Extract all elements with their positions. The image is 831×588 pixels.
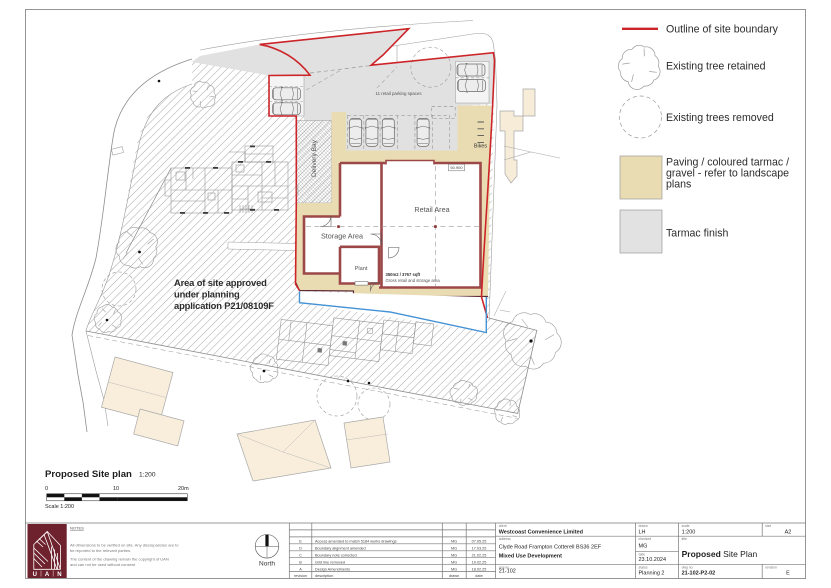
- svg-text:Outline of site boundary: Outline of site boundary: [666, 24, 779, 36]
- svg-text:A: A: [45, 572, 50, 578]
- svg-text:E: E: [299, 540, 302, 544]
- svg-text:Tarmac finish: Tarmac finish: [666, 228, 729, 240]
- svg-text:07.05.25: 07.05.25: [472, 540, 487, 544]
- svg-text:under planning: under planning: [174, 289, 240, 300]
- svg-text:Gross retail and storage area: Gross retail and storage area: [386, 278, 441, 283]
- svg-text:description: description: [315, 574, 333, 578]
- svg-text:10: 10: [113, 486, 119, 492]
- svg-text:20m: 20m: [178, 486, 189, 492]
- svg-text:E: E: [786, 571, 790, 577]
- svg-text:All dimensions to be verified: All dimensions to be verified on site. A…: [70, 543, 179, 548]
- svg-text:Design Amendments: Design Amendments: [315, 567, 350, 571]
- svg-text:U: U: [33, 572, 37, 578]
- svg-text:C: C: [299, 553, 302, 557]
- svg-text:Proposed Site plan: Proposed Site plan: [45, 469, 132, 480]
- svg-text:21.02.25: 21.02.25: [472, 553, 487, 557]
- svg-text:application P21/08109F: application P21/08109F: [174, 300, 274, 311]
- svg-text:MG: MG: [451, 540, 457, 544]
- svg-text:status: status: [639, 565, 648, 569]
- svg-text:revision: revision: [294, 574, 307, 578]
- svg-text:N: N: [57, 572, 61, 578]
- svg-text:drawn: drawn: [449, 574, 459, 578]
- svg-text:Boundary alignment amended: Boundary alignment amended: [315, 547, 366, 551]
- svg-text:MG: MG: [451, 547, 457, 551]
- svg-text:plans: plans: [666, 179, 691, 191]
- svg-text:kerbline: kerbline: [296, 184, 300, 195]
- svg-text:Access amended to match 5184 w: Access amended to match 5184 works drawi…: [315, 540, 397, 544]
- svg-text:size: size: [765, 524, 771, 528]
- svg-text:D: D: [299, 547, 302, 551]
- svg-text:dwg no.: dwg no.: [682, 565, 694, 569]
- svg-text:client: client: [499, 524, 507, 528]
- svg-text:B: B: [299, 560, 302, 564]
- svg-text:Existing tree retained: Existing tree retained: [666, 61, 766, 73]
- svg-text:address: address: [499, 537, 511, 541]
- svg-text:11 retail parking spaces: 11 retail parking spaces: [375, 91, 422, 96]
- svg-text:Retail Area: Retail Area: [414, 205, 449, 214]
- svg-text:Plant: Plant: [355, 266, 368, 272]
- svg-text:NOTES: NOTES: [70, 526, 84, 531]
- svg-text:Proposed Site Plan: Proposed Site Plan: [682, 549, 758, 559]
- svg-text:19.02.25: 19.02.25: [472, 560, 487, 564]
- svg-text:LH: LH: [639, 530, 646, 536]
- svg-text:Clyde Road Frampton Cotterell: Clyde Road Frampton Cotterell BS36 2EF: [499, 545, 602, 551]
- svg-text:scale: scale: [682, 524, 690, 528]
- svg-text:17.03.25: 17.03.25: [472, 547, 487, 551]
- svg-text:21-102-P2-02: 21-102-P2-02: [682, 571, 716, 577]
- svg-text:Grid line removed: Grid line removed: [315, 560, 345, 564]
- svg-text:0: 0: [45, 486, 48, 492]
- svg-text:drawn: drawn: [639, 524, 648, 528]
- svg-text:A: A: [299, 567, 302, 571]
- svg-text:title: title: [682, 537, 687, 541]
- svg-text:A2: A2: [785, 530, 792, 536]
- svg-text:Bikes: Bikes: [474, 144, 487, 150]
- svg-text:Scale 1:200: Scale 1:200: [45, 504, 74, 510]
- svg-text:date: date: [475, 574, 482, 578]
- svg-text:revision: revision: [765, 565, 777, 569]
- svg-text:date: date: [639, 552, 646, 556]
- svg-text:MG: MG: [451, 553, 457, 557]
- svg-text:be reported to the relevant pa: be reported to the relevant parties.: [70, 548, 131, 553]
- svg-text:MG: MG: [639, 544, 648, 550]
- svg-text:50.900: 50.900: [450, 165, 463, 170]
- svg-text:Planning 2: Planning 2: [639, 571, 665, 577]
- svg-text:Storage Area: Storage Area: [321, 232, 363, 241]
- svg-text:Westcoast Convenience Limited: Westcoast Convenience Limited: [499, 530, 583, 536]
- svg-text:Existing trees removed: Existing trees removed: [666, 112, 774, 124]
- svg-text:MG: MG: [451, 567, 457, 571]
- svg-text:23.10.2024: 23.10.2024: [639, 557, 667, 563]
- svg-text:The content of the drawing rem: The content of the drawing remain the co…: [70, 557, 169, 562]
- svg-text:Mixed Use Development: Mixed Use Development: [499, 554, 562, 560]
- svg-text:and can not be used without co: and can not be used without consent: [70, 562, 136, 567]
- svg-text:1:200: 1:200: [139, 472, 156, 479]
- svg-text:21-102: 21-102: [499, 569, 516, 575]
- svg-text:18.02.25: 18.02.25: [472, 567, 487, 571]
- svg-text:350m2 / 3767 sqft: 350m2 / 3767 sqft: [386, 272, 421, 277]
- svg-text:North: North: [259, 561, 275, 568]
- svg-text:Area of site approved: Area of site approved: [174, 277, 267, 288]
- svg-text:MG: MG: [451, 560, 457, 564]
- svg-text:Delivery Bay: Delivery Bay: [311, 139, 318, 177]
- svg-text:1:200: 1:200: [682, 530, 696, 536]
- svg-text:checked: checked: [639, 537, 652, 541]
- svg-text:Boundary note corrected: Boundary note corrected: [315, 553, 357, 557]
